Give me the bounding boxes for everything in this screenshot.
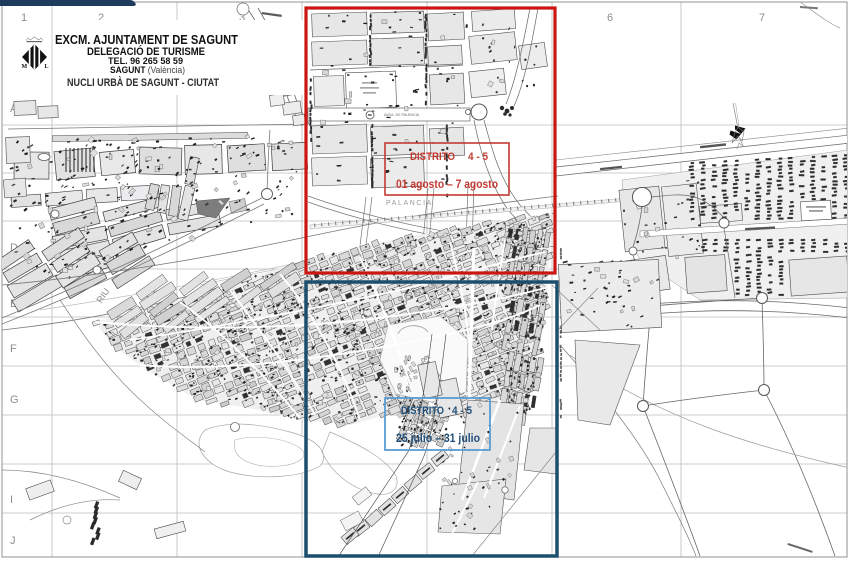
svg-text:7: 7: [759, 12, 765, 24]
svg-text:PALANCIA: PALANCIA: [386, 200, 433, 207]
svg-text:6: 6: [607, 12, 613, 24]
svg-text:J: J: [10, 535, 16, 547]
svg-text:F: F: [10, 343, 17, 355]
svg-text:DISTRITO: DISTRITO: [401, 405, 444, 417]
svg-text:L: L: [45, 64, 49, 70]
svg-text:4 - 5: 4 - 5: [468, 151, 488, 163]
svg-text:4 - 5: 4 - 5: [452, 405, 472, 417]
svg-text:NUCLI URBÀ DE SAGUNT - CIUTAT: NUCLI URBÀ DE SAGUNT - CIUTAT: [67, 76, 219, 89]
svg-text:DISTRITO: DISTRITO: [410, 151, 455, 163]
svg-text:1: 1: [21, 12, 27, 24]
svg-text:SAGUNT (València): SAGUNT (València): [110, 65, 185, 75]
svg-text:M: M: [22, 64, 28, 70]
svg-text:G: G: [10, 394, 19, 406]
svg-text:01 agosto – 7 agosto: 01 agosto – 7 agosto: [396, 179, 498, 191]
svg-text:AVDA. DE PALENCIA: AVDA. DE PALENCIA: [384, 113, 420, 117]
svg-text:EXCM. AJUNTAMENT DE SAGUNT: EXCM. AJUNTAMENT DE SAGUNT: [55, 33, 238, 47]
svg-text:25 julio – 31 julio: 25 julio – 31 julio: [396, 433, 480, 445]
svg-text:I: I: [10, 494, 13, 506]
